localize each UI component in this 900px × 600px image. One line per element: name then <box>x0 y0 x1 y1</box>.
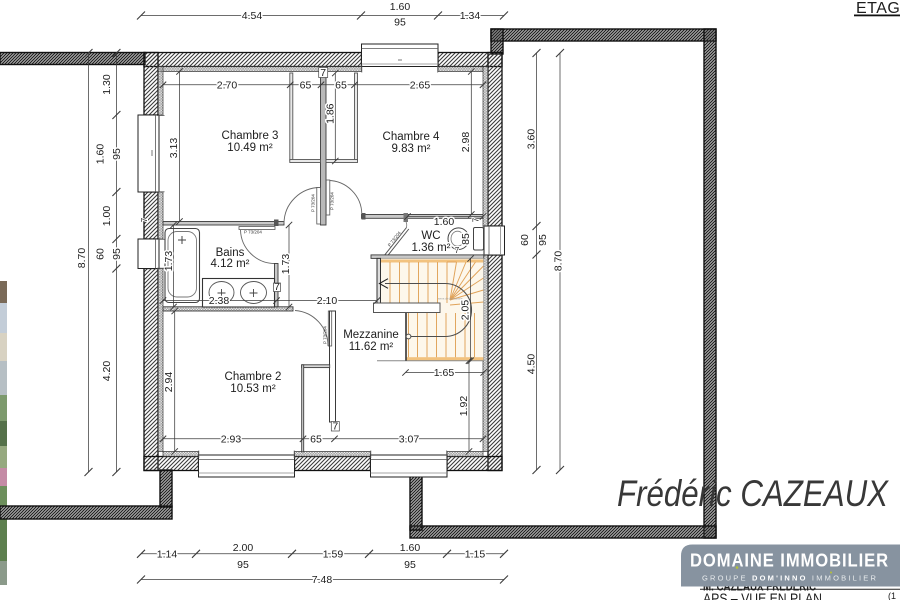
svg-text:7: 7 <box>274 281 280 293</box>
svg-text:2.05: 2.05 <box>460 300 472 321</box>
svg-text:1.34: 1.34 <box>460 10 481 22</box>
svg-text:7: 7 <box>472 217 481 222</box>
svg-text:1.60: 1.60 <box>390 1 411 13</box>
svg-text:65: 65 <box>310 433 322 445</box>
svg-text:95: 95 <box>394 17 406 29</box>
svg-text:4.50: 4.50 <box>526 354 538 375</box>
svg-text:95: 95 <box>111 148 123 160</box>
svg-text:60: 60 <box>519 234 531 246</box>
svg-text:Mezzanine: Mezzanine <box>343 329 399 341</box>
svg-text:Chambre 2: Chambre 2 <box>225 371 282 383</box>
svg-text:1.15: 1.15 <box>465 548 486 560</box>
svg-text:7.48: 7.48 <box>312 574 333 586</box>
svg-text:2.38: 2.38 <box>209 295 230 307</box>
svg-text:11.62 m²: 11.62 m² <box>349 341 394 353</box>
svg-text:9.83 m²: 9.83 m² <box>392 143 431 155</box>
svg-text:2.94: 2.94 <box>163 372 175 393</box>
svg-text:1.86: 1.86 <box>325 103 337 124</box>
svg-text:7: 7 <box>332 421 338 433</box>
svg-text:95: 95 <box>404 559 416 571</box>
svg-text:60: 60 <box>95 248 107 260</box>
svg-text:85: 85 <box>460 233 472 245</box>
svg-text:P 73/204: P 73/204 <box>330 192 335 210</box>
svg-text:ETAGE: ETAGE <box>856 0 900 17</box>
svg-text:7: 7 <box>455 246 460 255</box>
svg-text:1.65: 1.65 <box>434 367 455 379</box>
svg-text:7: 7 <box>140 217 149 222</box>
svg-text:1.73: 1.73 <box>280 254 292 275</box>
svg-text:Chambre 4: Chambre 4 <box>383 131 440 143</box>
svg-text:2.93: 2.93 <box>221 433 242 445</box>
svg-text:1.14: 1.14 <box>157 548 178 560</box>
svg-text:1.30: 1.30 <box>101 74 113 95</box>
svg-text:10.53 m²: 10.53 m² <box>230 383 276 395</box>
svg-text:P 73/204: P 73/204 <box>244 230 262 235</box>
svg-text:2.70: 2.70 <box>217 79 238 91</box>
svg-text:3.13: 3.13 <box>168 138 180 159</box>
svg-text:DOMAINE IMMOBILIER: DOMAINE IMMOBILIER <box>690 551 889 571</box>
svg-text:4.20: 4.20 <box>101 361 113 382</box>
svg-text:P 73/204: P 73/204 <box>323 326 328 344</box>
svg-text:2.65: 2.65 <box>410 79 431 91</box>
svg-text:Chambre 3: Chambre 3 <box>222 130 279 142</box>
svg-text:3.60: 3.60 <box>526 129 538 150</box>
svg-text:65: 65 <box>335 79 347 91</box>
svg-text:8.70: 8.70 <box>76 248 88 269</box>
svg-text:4.54: 4.54 <box>242 10 263 22</box>
svg-text:95: 95 <box>237 559 249 571</box>
svg-text:1.60: 1.60 <box>400 542 421 554</box>
svg-text:8.70: 8.70 <box>553 251 565 272</box>
svg-text:1.60: 1.60 <box>434 216 455 228</box>
svg-text:95: 95 <box>111 248 123 260</box>
svg-text:10.49 m²: 10.49 m² <box>227 142 273 154</box>
svg-text:(1: (1 <box>888 591 896 600</box>
svg-text:3.07: 3.07 <box>399 433 420 445</box>
svg-text:2.00: 2.00 <box>233 542 254 554</box>
svg-text:1.00: 1.00 <box>101 206 113 227</box>
svg-text:2.98: 2.98 <box>460 132 472 153</box>
svg-text:7: 7 <box>320 67 326 79</box>
svg-text:4.12 m²: 4.12 m² <box>211 258 250 270</box>
svg-text:GROUPE DOM'INNO IMMOBILIER: GROUPE DOM'INNO IMMOBILIER <box>702 574 878 583</box>
svg-text:1.60: 1.60 <box>95 144 107 165</box>
svg-text:1.73: 1.73 <box>163 251 175 272</box>
svg-text:WC: WC <box>421 230 440 242</box>
svg-text:1.36 m²: 1.36 m² <box>412 242 451 254</box>
svg-text:P 73/204: P 73/204 <box>311 194 316 212</box>
svg-text:65: 65 <box>300 79 312 91</box>
svg-text:2.10: 2.10 <box>317 295 338 307</box>
svg-text:Frédéric CAZEAUX: Frédéric CAZEAUX <box>617 473 889 514</box>
svg-text:APS – VUE EN PLAN: APS – VUE EN PLAN <box>703 592 822 600</box>
svg-text:1.92: 1.92 <box>458 396 470 417</box>
svg-text:95: 95 <box>537 234 549 246</box>
svg-text:1.59: 1.59 <box>323 548 344 560</box>
